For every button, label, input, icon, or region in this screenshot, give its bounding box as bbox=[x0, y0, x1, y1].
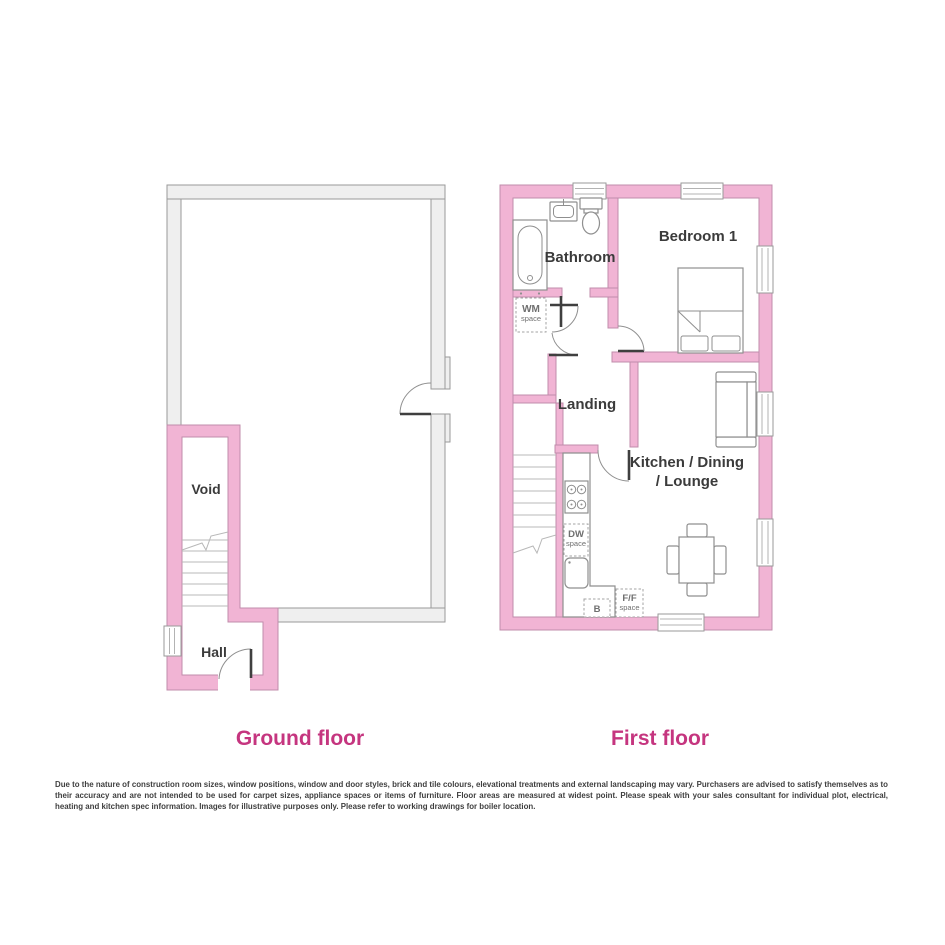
window bbox=[757, 246, 773, 293]
room-label-kitchen-line2: / Lounge bbox=[656, 473, 719, 490]
ground-floor-title: Ground floor bbox=[236, 727, 364, 750]
room-label-bedroom1: Bedroom 1 bbox=[659, 228, 737, 245]
kitchen-sink-icon bbox=[565, 558, 588, 588]
wm-space-sub: space bbox=[521, 314, 541, 323]
first-floor-plan: WM space bbox=[500, 183, 773, 631]
window bbox=[573, 183, 606, 199]
hob-icon bbox=[565, 481, 588, 513]
bed-icon bbox=[678, 268, 743, 353]
window bbox=[757, 519, 773, 566]
sink-icon bbox=[550, 199, 577, 221]
room-label-void: Void bbox=[191, 481, 220, 497]
ground-interior bbox=[181, 199, 431, 608]
room-label-bathroom: Bathroom bbox=[545, 249, 616, 266]
ff-space-sub: space bbox=[619, 603, 639, 612]
hall-window bbox=[164, 626, 181, 656]
window bbox=[757, 392, 773, 436]
ground-floor-plan: Void Hall bbox=[164, 185, 450, 692]
disclaimer-text: Due to the nature of construction room s… bbox=[55, 779, 888, 812]
floorplan-page: Void Hall bbox=[0, 0, 945, 945]
boiler-space: B bbox=[584, 599, 610, 617]
ff-space: F/F space bbox=[616, 589, 643, 617]
room-label-hall: Hall bbox=[201, 644, 227, 660]
boiler-label: B bbox=[594, 604, 601, 615]
room-label-landing: Landing bbox=[558, 396, 616, 413]
dw-space: DW space bbox=[564, 524, 588, 556]
first-floor-title: First floor bbox=[611, 727, 709, 750]
hall-door-opening bbox=[218, 673, 250, 692]
window bbox=[658, 614, 704, 631]
window bbox=[681, 183, 723, 199]
sofa-icon bbox=[716, 372, 756, 447]
room-label-kitchen-line1: Kitchen / Dining bbox=[630, 454, 744, 471]
wm-space: WM space bbox=[516, 298, 546, 332]
dw-space-sub: space bbox=[566, 539, 586, 548]
bath-icon bbox=[513, 220, 547, 295]
